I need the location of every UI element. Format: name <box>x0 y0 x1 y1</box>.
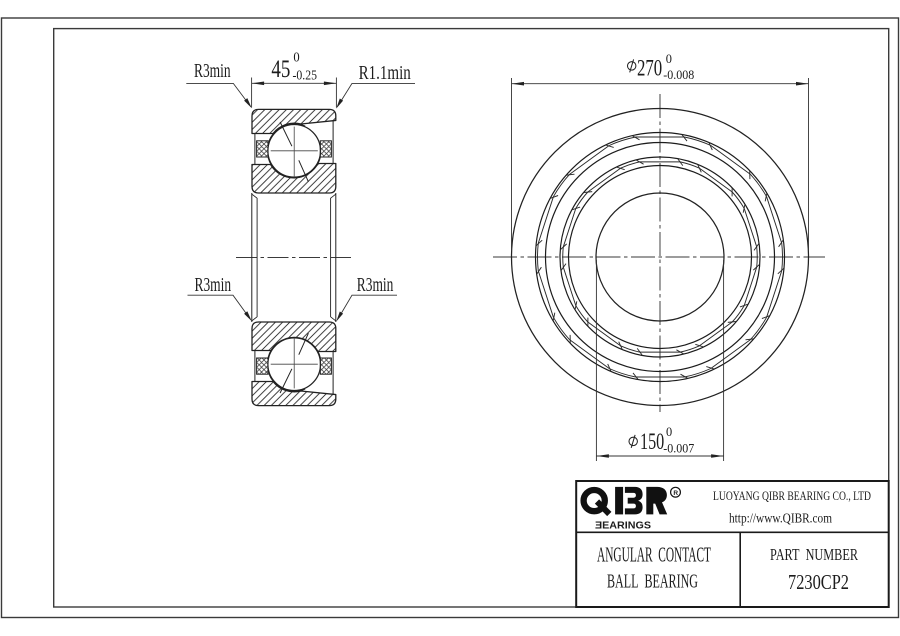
svg-text:-0.007: -0.007 <box>663 441 694 456</box>
svg-text:R3min: R3min <box>195 274 232 296</box>
svg-text:http://www.QIBR.com: http://www.QIBR.com <box>729 510 832 525</box>
svg-text:LUOYANG QIBR BEARING CO., LTD: LUOYANG QIBR BEARING CO., LTD <box>713 488 871 503</box>
svg-text:-0.008: -0.008 <box>663 67 694 82</box>
svg-text:R3min: R3min <box>194 60 231 82</box>
svg-text:PART NUMBER: PART NUMBER <box>770 545 858 564</box>
svg-text:45: 45 <box>271 54 290 83</box>
svg-text:ƎEARINGS: ƎEARINGS <box>595 520 651 531</box>
svg-text:ANGULAR CONTACT: ANGULAR CONTACT <box>597 543 711 567</box>
svg-text:270: 270 <box>637 55 662 81</box>
svg-text:-0.25: -0.25 <box>293 68 318 83</box>
svg-text:0: 0 <box>666 51 672 66</box>
svg-text:150: 150 <box>640 429 664 455</box>
svg-text:R3min: R3min <box>357 274 394 296</box>
svg-text:R1.1min: R1.1min <box>359 62 411 84</box>
svg-text:7230CP2: 7230CP2 <box>788 570 849 594</box>
svg-text:0: 0 <box>293 50 300 65</box>
svg-text:R: R <box>673 490 678 497</box>
svg-text:BALL BEARING: BALL BEARING <box>607 571 698 593</box>
svg-text:0: 0 <box>666 424 672 439</box>
